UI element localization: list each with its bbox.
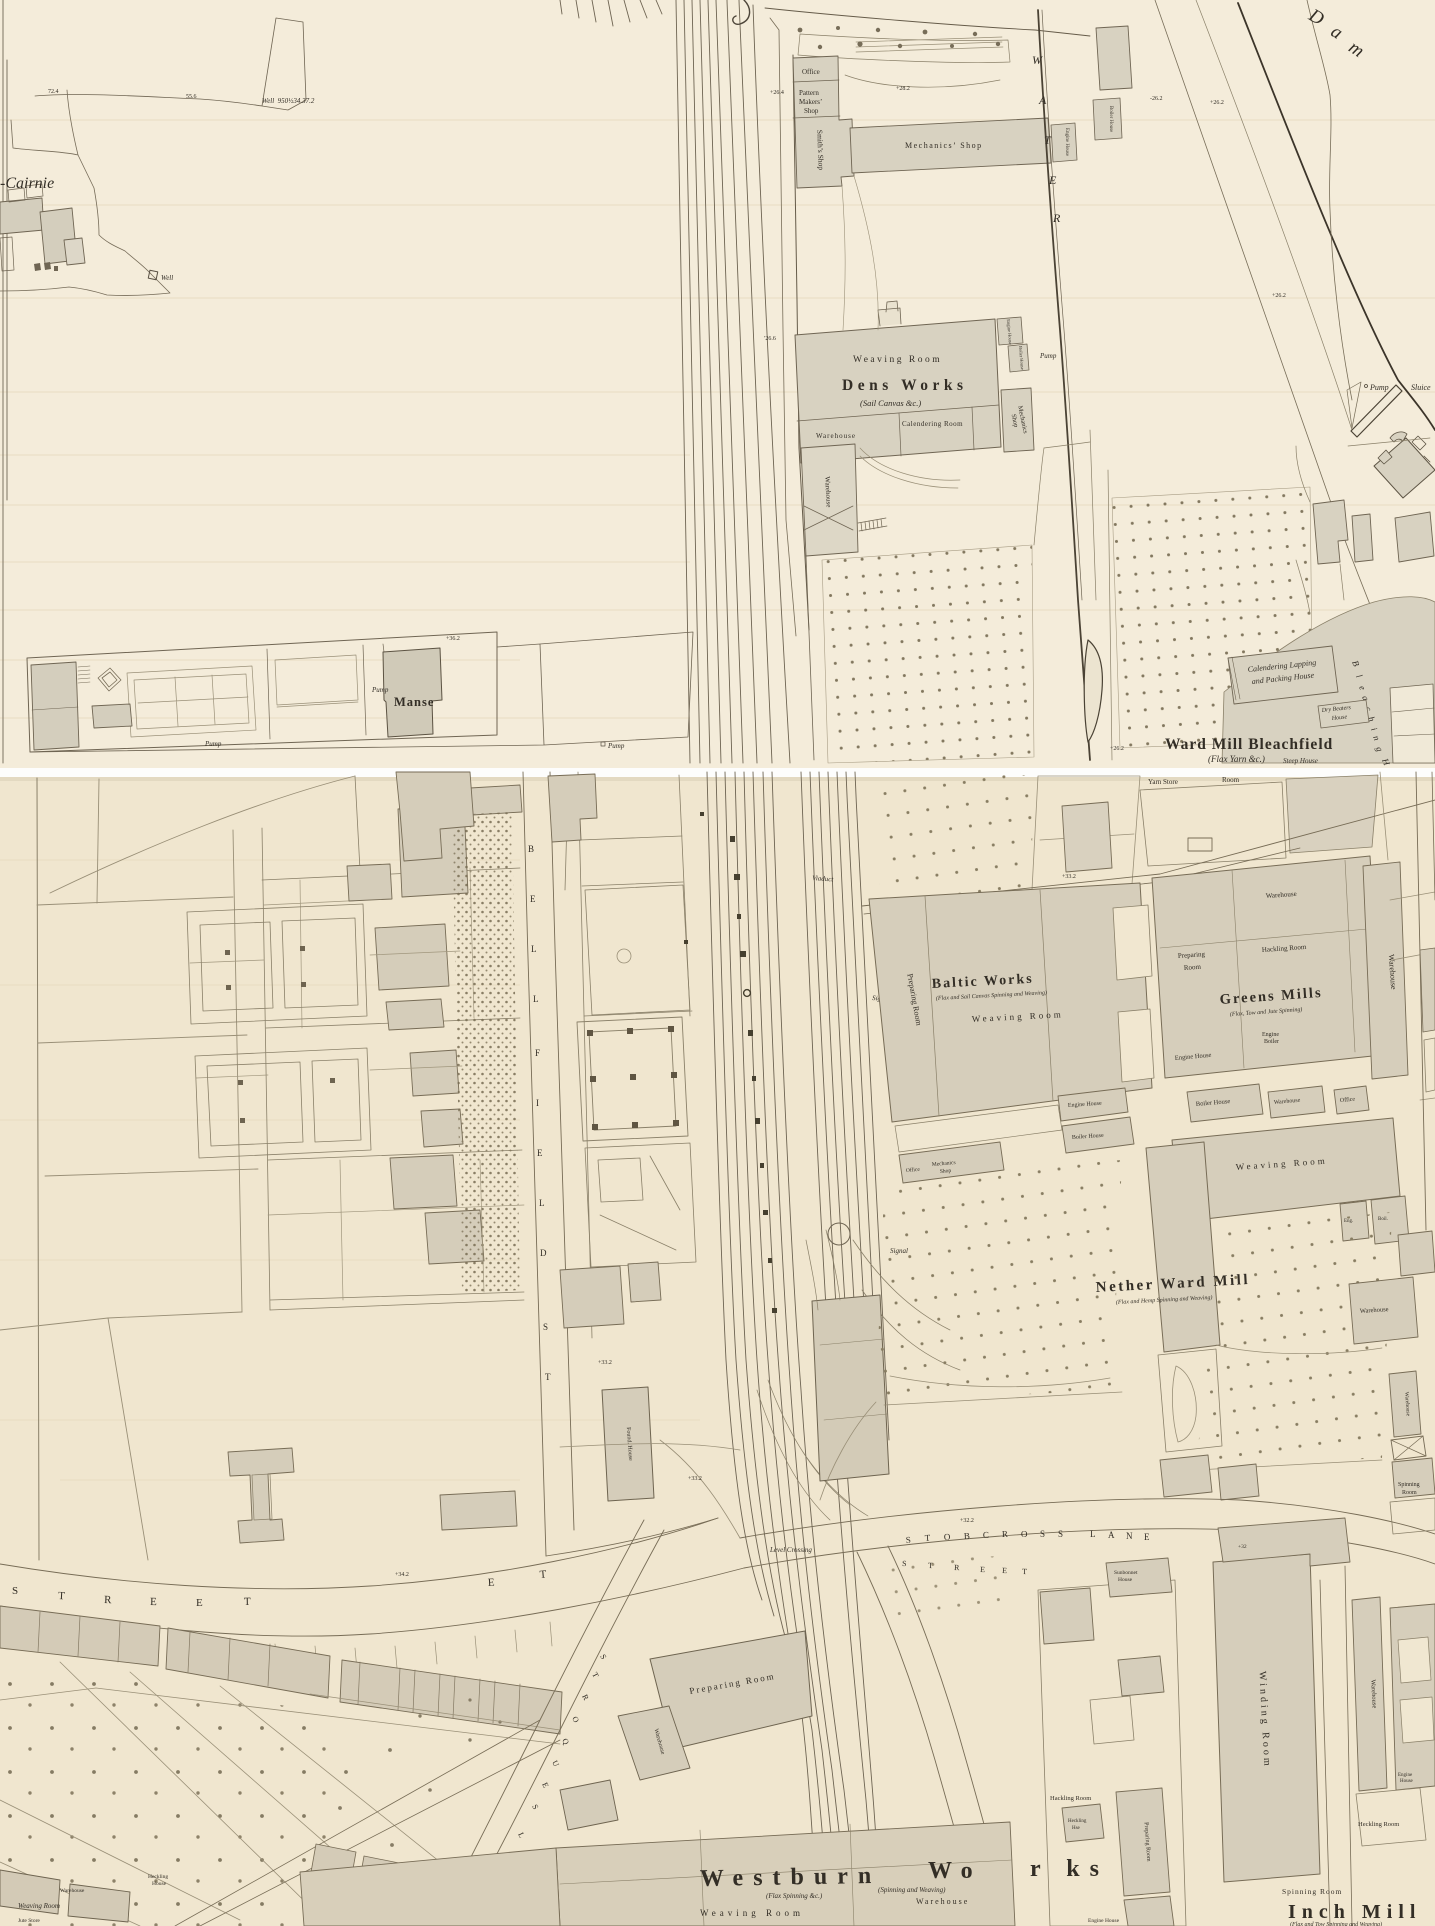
svg-text:Office: Office [1340, 1096, 1356, 1104]
svg-text:O: O [944, 1532, 952, 1542]
svg-text:55.6: 55.6 [186, 94, 197, 100]
svg-text:E: E [488, 1577, 496, 1589]
svg-text:Room: Room [1402, 1490, 1417, 1496]
svg-text:+32.2: +32.2 [960, 1518, 974, 1524]
svg-text:Heckling Room: Heckling Room [1358, 1821, 1399, 1828]
svg-text:S: S [12, 1585, 18, 1597]
svg-text:+33.2: +33.2 [1062, 874, 1076, 880]
svg-text:Pump: Pump [204, 740, 222, 748]
svg-text:Westburn: Westburn [700, 1863, 882, 1892]
svg-text:Yarn Store: Yarn Store [1148, 778, 1178, 786]
svg-text:T: T [1022, 1567, 1027, 1576]
svg-text:S: S [543, 1322, 548, 1332]
svg-text:T: T [539, 1568, 547, 1581]
svg-text:F: F [535, 1048, 540, 1058]
svg-text:+26.2: +26.2 [1110, 746, 1124, 752]
svg-text:Engine House: Engine House [1064, 128, 1069, 157]
svg-text:Makers’: Makers’ [799, 98, 822, 106]
svg-text:T: T [545, 1372, 551, 1382]
svg-text:Engine: Engine [1398, 1773, 1413, 1778]
svg-text:R: R [1052, 211, 1061, 225]
svg-text:Weaving Room: Weaving Room [700, 1908, 804, 1918]
svg-text:L: L [531, 944, 537, 954]
svg-text:+26.2: +26.2 [1272, 293, 1286, 299]
svg-text:(Flax Spinning &c.): (Flax Spinning &c.) [766, 1892, 823, 1900]
svg-text:R: R [1002, 1529, 1008, 1539]
svg-text:+36.2: +36.2 [446, 636, 460, 642]
svg-text:+33.2: +33.2 [598, 1360, 612, 1366]
svg-text:Office: Office [802, 68, 820, 76]
svg-text:72.4: 72.4 [48, 89, 59, 95]
svg-text:Warehouse: Warehouse [823, 476, 833, 507]
svg-text:Heckling: Heckling [148, 1874, 168, 1880]
svg-text:Steep House: Steep House [1283, 757, 1318, 765]
svg-text:Boiler: Boiler [1264, 1039, 1279, 1045]
svg-text:E: E [537, 1148, 543, 1158]
svg-text:Smith’s Shop: Smith’s Shop [815, 130, 825, 171]
svg-text:O: O [1021, 1529, 1028, 1539]
svg-text:′26.6: ′26.6 [764, 336, 776, 342]
svg-text:Ward Mill Bleachfield: Ward Mill Bleachfield [1165, 736, 1333, 753]
svg-text:Pump: Pump [607, 742, 625, 750]
svg-text:L: L [533, 994, 539, 1004]
svg-text:Warehouse: Warehouse [916, 1897, 969, 1906]
svg-text:T: T [244, 1596, 251, 1608]
svg-text:(Flax and Tow Spinning and Wea: (Flax and Tow Spinning and Weaving) [1290, 1921, 1382, 1926]
svg-text:+26.4: +26.4 [770, 90, 784, 96]
svg-text:+33.2: +33.2 [688, 1476, 702, 1482]
svg-text:B: B [528, 844, 534, 854]
svg-text:House: House [1118, 1577, 1133, 1583]
svg-text:Shop: Shop [940, 1168, 952, 1175]
svg-text:+34.2: +34.2 [395, 1572, 409, 1578]
svg-text:A: A [1038, 93, 1047, 107]
svg-text:E: E [196, 1597, 203, 1609]
svg-text:L: L [1090, 1529, 1096, 1539]
svg-text:Level Crossing: Level Crossing [769, 1546, 812, 1554]
svg-text:S: S [905, 1535, 911, 1545]
svg-text:C: C [983, 1530, 989, 1540]
svg-text:L: L [539, 1198, 545, 1208]
svg-text:Pump: Pump [1039, 352, 1057, 360]
svg-text:Warehouse: Warehouse [816, 432, 856, 440]
svg-text:+26.2: +26.2 [1210, 100, 1224, 106]
svg-text:Mechanics’ Shop: Mechanics’ Shop [905, 141, 983, 150]
svg-text:(Sail Canvas &c.): (Sail Canvas &c.) [860, 398, 921, 408]
svg-text:Weaving Room: Weaving Room [853, 355, 942, 365]
svg-text:-26.2: -26.2 [1150, 96, 1163, 102]
svg-text:House: House [152, 1881, 167, 1887]
svg-text:Pattern: Pattern [799, 89, 819, 97]
svg-text:Inch Mill: Inch Mill [1288, 1901, 1421, 1923]
svg-text:Hackling Room: Hackling Room [1050, 1795, 1091, 1802]
svg-text:Pump: Pump [371, 686, 389, 694]
svg-text:Spinning: Spinning [1398, 1482, 1420, 1488]
svg-text:(Spinning and Weaving): (Spinning and Weaving) [878, 1886, 946, 1894]
svg-text:Engine House: Engine House [1088, 1918, 1120, 1924]
svg-text:N: N [1126, 1531, 1133, 1541]
svg-text:Hse: Hse [1072, 1826, 1081, 1831]
svg-text:Well 950½34.37.2: Well 950½34.37.2 [262, 97, 315, 105]
svg-text:Shop: Shop [804, 107, 819, 115]
svg-text:Pump: Pump [1369, 383, 1389, 392]
svg-text:Well: Well [161, 274, 173, 282]
svg-text:Sluice: Sluice [1411, 383, 1431, 392]
svg-text:Boiler House: Boiler House [1108, 106, 1113, 133]
svg-text:I: I [536, 1098, 539, 1108]
svg-text:Manse: Manse [394, 695, 434, 709]
svg-text:Spinning Room: Spinning Room [1282, 1887, 1342, 1896]
svg-text:Jute Store: Jute Store [18, 1918, 40, 1924]
svg-text:B: B [964, 1531, 971, 1541]
svg-text:S: S [1040, 1529, 1045, 1539]
svg-text:Room: Room [1222, 776, 1240, 784]
svg-text:House: House [1400, 1779, 1414, 1784]
svg-text:E: E [150, 1596, 157, 1608]
svg-text:Wo: Wo [928, 1858, 983, 1884]
svg-text:(Flax Yarn &c.): (Flax Yarn &c.) [1208, 754, 1265, 764]
svg-text:-Cairnie: -Cairnie [0, 175, 54, 192]
svg-text:Warehouse: Warehouse [60, 1888, 85, 1894]
svg-text:S: S [1058, 1529, 1063, 1539]
svg-text:Viaduct: Viaduct [812, 874, 835, 884]
svg-text:W: W [1032, 53, 1043, 67]
svg-text:+32: +32 [1238, 1544, 1247, 1550]
svg-text:Heckling: Heckling [1068, 1819, 1087, 1824]
svg-text:E: E [1002, 1566, 1007, 1575]
svg-text:+28.2: +28.2 [896, 86, 910, 92]
svg-text:Dens Works: Dens Works [842, 377, 968, 394]
svg-text:Room: Room [1184, 963, 1202, 972]
svg-text:T: T [58, 1590, 66, 1602]
svg-text:r ks: r ks [1030, 1856, 1109, 1882]
svg-text:Office: Office [906, 1166, 921, 1174]
svg-text:R: R [104, 1594, 112, 1606]
svg-text:Calendering Room: Calendering Room [902, 420, 963, 428]
svg-text:Sunbonnet: Sunbonnet [1114, 1570, 1138, 1576]
svg-text:E: E [1144, 1532, 1150, 1542]
svg-text:D: D [540, 1248, 547, 1258]
svg-text:Engine: Engine [1262, 1032, 1279, 1038]
svg-text:E: E [530, 894, 536, 904]
svg-text:A: A [1108, 1530, 1115, 1540]
svg-text:E: E [1048, 173, 1057, 187]
svg-text:Weaving Room: Weaving Room [18, 1902, 60, 1910]
